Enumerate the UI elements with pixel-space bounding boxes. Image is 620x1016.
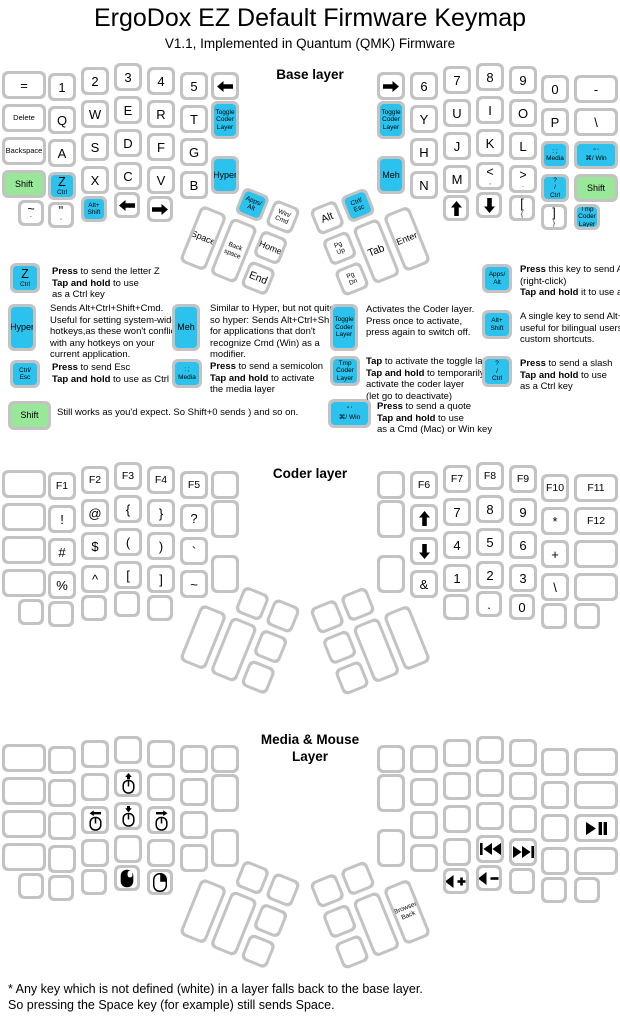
blank-key [309,873,345,909]
key-e: E [114,96,142,124]
key-4: 4 [443,531,471,559]
key-pg-up: PgUp [321,230,357,266]
key-shift: Shift [8,401,51,430]
volume-up-icon [446,875,466,888]
key-hash: # [48,538,76,566]
blank-key [2,470,46,498]
key-4: 4 [147,67,175,95]
blank-key [509,868,535,894]
blank-key [2,536,46,564]
blank-key [147,740,175,768]
arrow-up-icon [451,201,462,216]
key-8: 8 [476,63,504,91]
key-toggle-coder-layer: ToggleCoderLayer [211,101,239,139]
mouse-move-down-key [114,802,142,830]
blank-key [340,586,376,622]
blank-key [114,736,142,764]
blank-key [574,847,618,875]
blank-key [443,805,471,833]
key-alt-plus-shift: Alt+Shift [482,310,512,339]
key-tmp-coder-layer: TmpCoderLayer [330,356,360,386]
blank-key [410,811,438,839]
arrow-left-icon [217,81,233,92]
key-alt: Alt [309,200,345,236]
blank-key [252,628,288,664]
key-ctrl-slash-esc: Ctrl/Esc [10,360,40,388]
key-tilde-backtick: ~` [18,200,44,226]
blank-key [541,847,569,875]
key-toggle-coder-layer: ToggleCoderLayer [330,304,358,351]
key-left-paren: ( [114,528,142,556]
media-layer-title: Media & Mouse Layer [250,731,370,765]
blank-key [265,598,301,634]
key-1: 1 [443,564,471,592]
key-right-bracket: ] [147,565,175,593]
key-f5: F5 [180,471,208,499]
blank-key [81,839,109,867]
key-f7: F7 [443,465,471,493]
key-c: C [114,162,142,190]
blank-key [410,844,438,872]
key-q: Q [48,106,76,134]
prev-track-icon [480,843,501,855]
blank-key [2,777,46,805]
arrow-left-key [211,72,239,100]
legend-text: Press this key to send Apps(right-click)… [520,264,620,299]
blank-key [180,778,208,806]
key-a: A [48,139,76,167]
blank-key [81,595,107,621]
blank-key [180,844,208,872]
coder-layer-title: Coder layer [247,465,373,482]
blank-key [334,660,370,696]
blank-key [2,503,46,531]
blank-key [509,805,537,833]
volume-down-icon [479,872,499,885]
arrow-right-key [377,72,405,100]
arrow-right-icon [383,81,399,92]
keymap-page: ErgoDox EZ Default Firmware Keymap V1.1,… [0,0,620,1016]
blank-key [48,601,74,627]
key-9: 9 [509,498,537,526]
key-6: 6 [410,72,438,100]
blank-key [114,591,140,617]
legend-text: Sends Alt+Ctrl+Shift+Cmd.Useful for sett… [50,303,178,361]
key-f: F [147,133,175,161]
blank-key [81,740,109,768]
key-quote-apostrophe-slash-win: " '⌘/ Win [328,399,371,428]
prev-track-key [476,835,504,863]
blank-key [180,745,208,773]
key-2: 2 [81,67,109,95]
blank-key [321,629,357,665]
play-pause-key [574,814,618,842]
key-alt-plus-shift: Alt+Shift [81,196,107,222]
key-n: N [410,171,438,199]
blank-key [211,774,239,812]
key-backslash: \ [574,108,618,136]
blank-key [574,748,618,776]
key-tmp-coder-layer: TmpCoderLayer [574,204,600,230]
key-f8: F8 [476,462,504,490]
blank-key [541,814,569,842]
key-b: B [180,171,208,199]
mouse-move-down-icon [121,806,136,827]
blank-key [265,872,301,908]
blank-key [476,802,504,830]
blank-key [211,500,239,538]
key-right-bracket-right-brace: ]} [541,204,567,230]
key-at: @ [81,499,109,527]
footnote: * Any key which is not defined (white) i… [8,981,423,1013]
arrow-down-icon [484,198,495,213]
key-k: K [476,129,504,157]
key-3: 3 [509,564,537,592]
blank-key [476,736,504,764]
key-7: 7 [443,66,471,94]
key-f6: F6 [410,471,438,499]
key-delete: Delete [2,104,46,132]
blank-key [476,769,504,797]
mouse-move-right-icon [154,810,169,831]
blank-key [147,595,173,621]
key-u: U [443,99,471,127]
blank-key [377,500,405,538]
key-t: T [180,105,208,133]
arrow-down-key [410,537,438,565]
blank-key [340,860,376,896]
key-exclamation: ! [48,505,76,533]
key-apps-slash-alt: Apps/Alt [234,186,270,222]
key-shift: Shift [574,174,618,202]
blank-key [541,781,569,809]
legend-text: Press to send a slashTap and hold to use… [520,358,612,393]
key-ctrl-slash-esc: Ctrl/Esc [340,187,376,223]
blank-key [48,875,74,901]
blank-key [377,774,405,812]
key-question: ? [180,504,208,532]
key-left-brace: { [114,495,142,523]
key-f9: F9 [509,465,537,493]
key-m: M [443,165,471,193]
arrow-right-icon [152,204,168,215]
blank-key [147,773,175,801]
key-5: 5 [476,528,504,556]
key-1: 1 [48,73,76,101]
legend-text: Tap to activate the toggle layer.Tap and… [366,356,498,402]
blank-key [443,838,471,866]
key-quote-apostrophe-slash-win: " '⌘/ Win [574,141,618,169]
arrow-up-key [443,195,469,221]
blank-key [81,773,109,801]
key-quote-apostrophe: "' [48,202,74,228]
key-v: V [147,166,175,194]
key-less-than-comma: <, [476,162,504,190]
page-subtitle: V1.1, Implemented in Quantum (QMK) Firmw… [0,36,620,51]
blank-key [81,869,107,895]
key-apps-slash-alt: Apps/Alt [482,264,512,293]
key-backtick: ` [180,537,208,565]
mouse-move-left-key [81,806,109,834]
key-y: Y [410,105,438,133]
blank-key [410,745,438,773]
key-g: G [180,138,208,166]
blank-key [541,748,569,776]
blank-key [321,903,357,939]
key-6: 6 [509,531,537,559]
blank-key [410,778,438,806]
key-x: X [81,166,109,194]
play-pause-icon [586,822,607,835]
legend-text: Press to send a semicolonTap and hold to… [210,361,323,396]
blank-key [541,603,567,629]
key-i: I [476,96,504,124]
blank-key [377,745,405,773]
key-r: R [147,100,175,128]
legend-text: Press to send the letter ZTap and hold t… [52,266,160,301]
key-dollar: $ [81,532,109,560]
key-z-ctrl: ZCtrl [48,172,76,200]
blank-key [234,585,270,621]
mouse-move-right-key [147,806,175,834]
mouse-left-click-key [114,865,140,891]
key-left-bracket-left-brace: [{ [509,195,535,221]
blank-key [334,934,370,970]
arrow-down-key [476,192,502,218]
key-left-bracket: [ [114,561,142,589]
key-caret: ^ [81,565,109,593]
blank-key [309,599,345,635]
key-backspace: Backspace [2,137,46,165]
legend-text: Activates the Coder layer.Press once to … [366,304,474,339]
key-home: Home [252,229,288,265]
blank-key [211,745,239,773]
key-colon-semicolon-media: : ;Media [172,359,202,388]
key-percent: % [48,571,76,599]
arrow-left-icon [119,200,135,211]
volume-up-key [443,868,469,894]
blank-key [2,569,46,597]
key-3: 3 [114,63,142,91]
blank-key [2,744,46,772]
blank-key [2,810,46,838]
key-z-ctrl: ZCtrl [10,263,40,293]
legend-text: Press to send EscTap and hold to use as … [52,362,169,385]
blank-key [48,779,76,807]
arrow-right-key [147,196,173,222]
key-greater-than-period: >. [509,165,537,193]
blank-key [574,781,618,809]
key-f4: F4 [147,466,175,494]
blank-key [48,845,76,873]
key-h: H [410,138,438,166]
key-toggle-coder-layer: ToggleCoderLayer [377,101,405,139]
key-0: 0 [509,594,535,620]
blank-key [574,540,618,568]
blank-key [443,772,471,800]
blank-key [147,839,175,867]
key-w: W [81,100,109,128]
key-plus: + [541,540,569,568]
key-f3: F3 [114,462,142,490]
mouse-right-click-icon [153,873,167,892]
key-f1: F1 [48,472,76,500]
key-hyper: Hyper [8,304,36,351]
blank-key [18,599,44,625]
key-f12: F12 [574,507,618,535]
mouse-move-up-key [114,769,142,797]
key-right-paren: ) [147,532,175,560]
key-period: . [476,591,502,617]
blank-key [48,746,76,774]
arrow-left-key [114,192,140,218]
page-title: ErgoDox EZ Default Firmware Keymap [0,4,620,33]
blank-key [509,772,537,800]
blank-key [114,835,142,863]
blank-key [377,471,405,499]
blank-key [252,902,288,938]
mouse-move-left-icon [88,810,103,831]
next-track-key [509,838,537,866]
blank-key [234,859,270,895]
key-question-slash-ctrl: ?/Ctrl [541,174,569,202]
key-9: 9 [509,66,537,94]
key-f2: F2 [81,466,109,494]
blank-key [180,811,208,839]
blank-key [443,594,469,620]
key-5: 5 [180,72,208,100]
blank-key [211,471,239,499]
base-layer-title: Base layer [247,66,373,83]
legend-text: Still works as you'd expect. So Shift+0 … [57,407,298,419]
key-pg-dn: PgDn [334,261,370,297]
blank-key [541,877,567,903]
arrow-up-icon [419,511,430,526]
key-win-slash-cmd: Win/Cmd [265,199,301,235]
key-l: L [509,132,537,160]
blank-key [240,659,276,695]
blank-key [509,739,537,767]
blank-key [240,933,276,969]
key-f11: F11 [574,474,618,502]
key-s: S [81,133,109,161]
key-ampersand: & [410,570,438,598]
mouse-left-click-icon [120,869,134,888]
key-2: 2 [476,561,504,589]
key-p: P [541,108,569,136]
blank-key [574,603,600,629]
key-question-slash-ctrl: ?/Ctrl [482,356,512,387]
key-backslash: \ [541,573,569,601]
blank-key [574,877,600,903]
key-d: D [114,129,142,157]
arrow-up-key [410,504,438,532]
volume-down-key [476,865,502,891]
key-equals: = [2,71,46,99]
key-o: O [509,99,537,127]
key-asterisk: * [541,507,569,535]
legend-text: A single key to send Alt+Shift,useful fo… [520,311,620,346]
blank-key [18,873,44,899]
legend-text: Press to send a quoteTap and hold to use… [377,401,492,436]
blank-key [2,843,46,871]
legend-text: Similar to Hyper, but not quiteso hyper:… [210,303,339,361]
blank-key [443,739,471,767]
mouse-right-click-key [147,869,173,895]
key-7: 7 [443,498,471,526]
key-tilde: ~ [180,570,208,598]
key-shift: Shift [2,170,46,198]
arrow-down-icon [419,544,430,559]
key-meh: Meh [172,304,200,351]
mouse-move-up-icon [121,773,136,794]
blank-key [48,812,76,840]
key-colon-semicolon-media: : ;Media [541,141,569,169]
key-j: J [443,132,471,160]
key-0: 0 [541,75,569,103]
blank-key [574,573,618,601]
key-minus: - [574,75,618,103]
key-f10: F10 [541,474,569,502]
key-right-brace: } [147,499,175,527]
key-end: End [240,260,276,296]
next-track-icon [513,846,534,858]
key-8: 8 [476,495,504,523]
